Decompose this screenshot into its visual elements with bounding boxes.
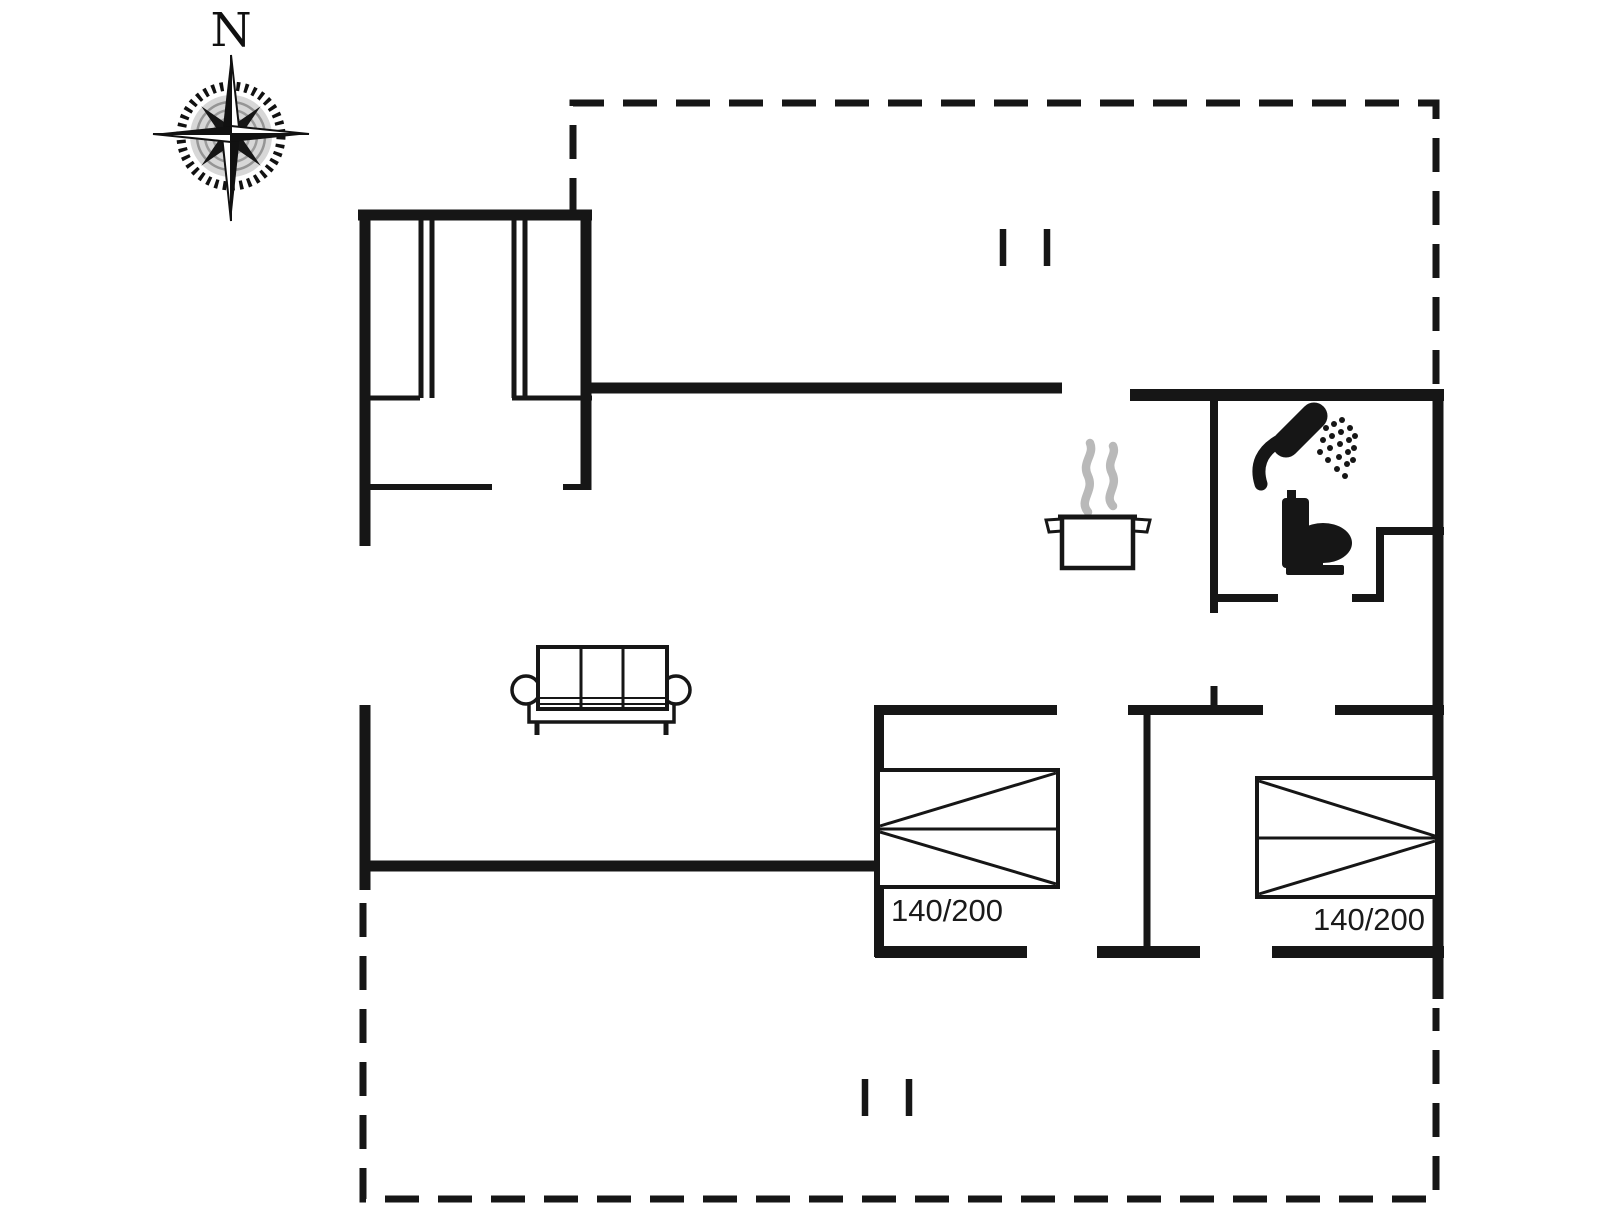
floor-plan: N (0, 0, 1606, 1205)
bed-1: 140/200 (878, 770, 1058, 928)
sofa-icon (512, 647, 690, 735)
steam-icon (1085, 443, 1114, 512)
sofa-armrest-left (512, 676, 540, 704)
terrace-opening-marks (865, 229, 1047, 1116)
toilet-icon (1282, 490, 1352, 575)
north-label: N (210, 3, 251, 58)
cooking-pot-icon (1046, 517, 1150, 568)
bed-2-size-label: 140/200 (1313, 902, 1425, 937)
bed-2: 140/200 (1257, 778, 1437, 937)
shower-icon (1259, 416, 1358, 484)
compass-rose-icon: N (153, 3, 309, 221)
bed-1-size-label: 140/200 (891, 893, 1003, 928)
closet-unit (360, 219, 592, 398)
floor-plan-drawing: N (0, 0, 1606, 1205)
sofa-cushions (538, 647, 667, 709)
compass-cardinal-points (153, 55, 309, 221)
shower-spray (1317, 417, 1358, 479)
